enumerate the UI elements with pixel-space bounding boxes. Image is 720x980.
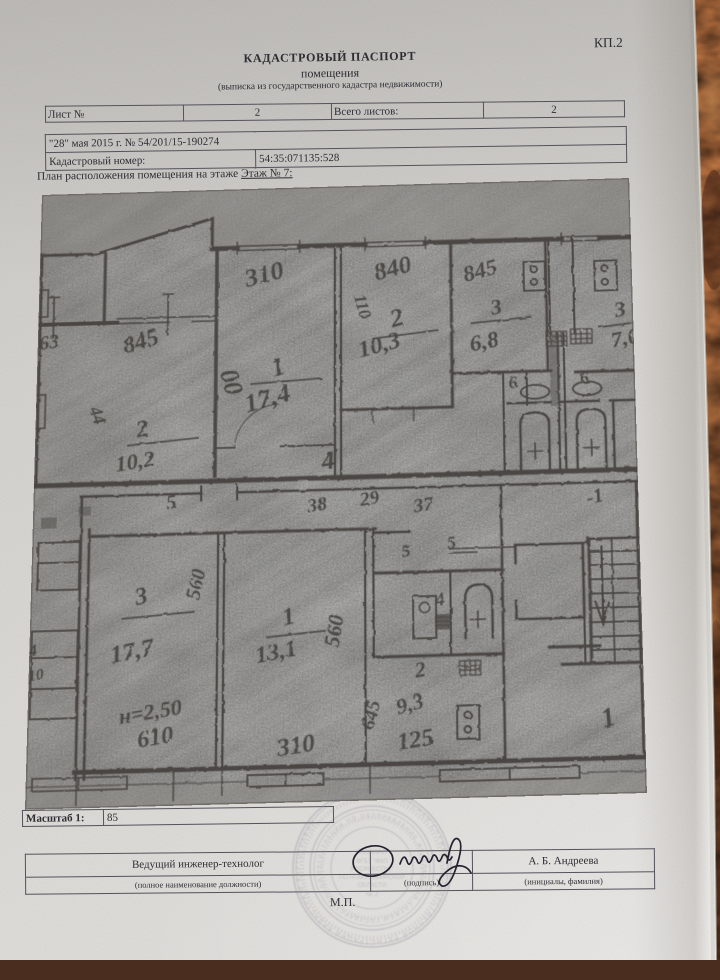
- svg-text:63: 63: [38, 331, 61, 355]
- svg-text:10: 10: [27, 666, 45, 686]
- svg-text:37: 37: [411, 493, 436, 517]
- svg-text:38: 38: [305, 493, 328, 517]
- svg-text:29: 29: [357, 486, 380, 510]
